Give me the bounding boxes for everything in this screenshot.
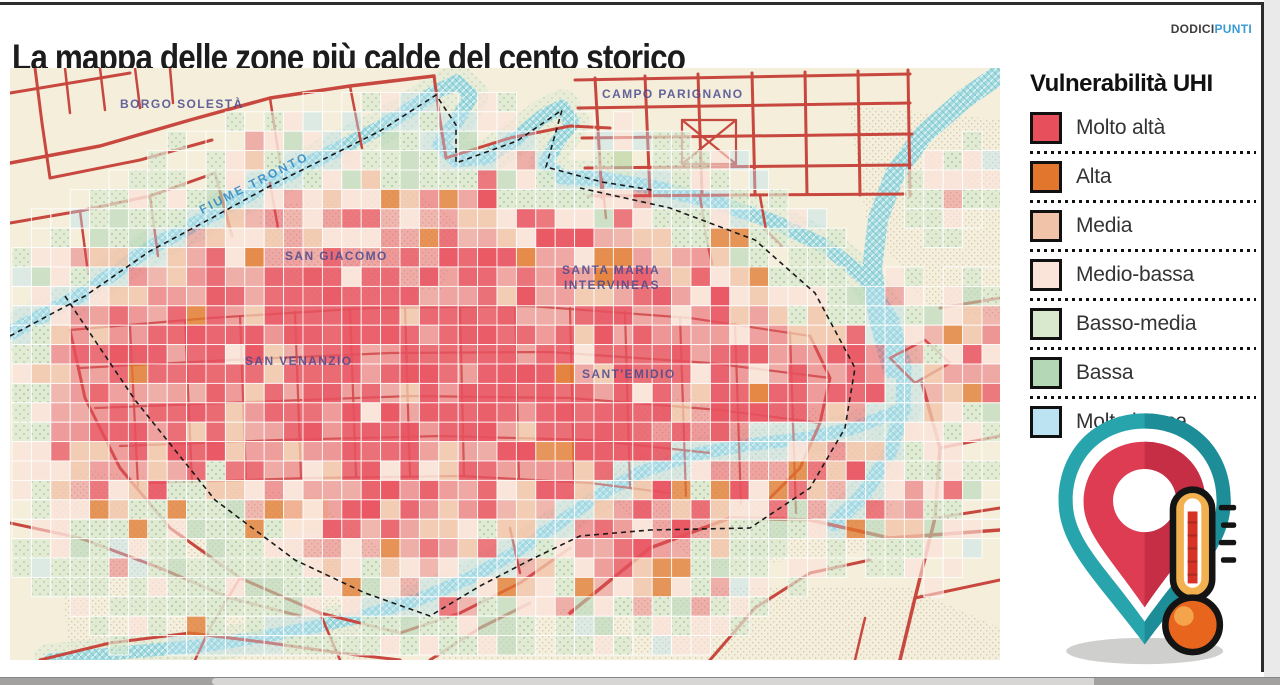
legend-label-1: Alta	[1076, 165, 1111, 189]
legend-title: Vulnerabilità UHI	[1030, 70, 1256, 98]
legend-swatch-4	[1030, 308, 1062, 340]
legend-separator	[1030, 151, 1256, 154]
legend-row-0: Molto altà	[1030, 106, 1256, 149]
page-right-gutter	[1264, 0, 1280, 685]
district-label: BORGO SOLESTÀ	[120, 96, 244, 111]
district-label: CAMPO PARIGNANO	[602, 87, 743, 101]
legend-label-3: Medio-bassa	[1076, 263, 1194, 287]
uhi-heat-map: BORGO SOLESTÀCAMPO PARIGNANOFIUME TRONTO…	[10, 68, 1000, 660]
district-label: SAN VENANZIO	[245, 354, 352, 368]
legend-separator	[1030, 249, 1256, 252]
brand-part1: DODICI	[1171, 22, 1215, 36]
legend-row-2: Media	[1030, 204, 1256, 247]
legend-swatch-1	[1030, 161, 1062, 193]
road	[858, 71, 860, 195]
legend-separator	[1030, 347, 1256, 350]
brand-logo: DODICIPUNTI	[1171, 22, 1252, 36]
frame-right-rule	[1261, 2, 1264, 672]
legend-label-5: Bassa	[1076, 361, 1133, 385]
legend-panel: Vulnerabilità UHI Molto altàAltaMediaMed…	[1030, 70, 1256, 443]
legend-row-1: Alta	[1030, 155, 1256, 198]
legend-label-0: Molto altà	[1076, 116, 1165, 140]
district-label: INTERVINEAS	[564, 278, 660, 292]
legend-swatch-5	[1030, 357, 1062, 389]
horizontal-scrollbar-track[interactable]	[0, 677, 1280, 685]
legend-row-3: Medio-bassa	[1030, 253, 1256, 296]
district-label: SANTA MARIA	[562, 263, 660, 277]
legend-label-2: Media	[1076, 214, 1132, 238]
legend-separator	[1030, 200, 1256, 203]
legend-row-4: Basso-media	[1030, 302, 1256, 345]
pin-thermometer-svg	[1040, 402, 1258, 670]
frame-top-rule	[0, 2, 1263, 5]
legend-label-4: Basso-media	[1076, 312, 1196, 336]
pin-hole	[1113, 469, 1176, 532]
legend-swatch-3	[1030, 259, 1062, 291]
district-label: SANT'EMIDIO	[582, 367, 676, 381]
legend-separator	[1030, 298, 1256, 301]
brand-part2: PUNTI	[1215, 22, 1253, 36]
legend-swatch-0	[1030, 112, 1062, 144]
district-label: SAN GIACOMO	[285, 249, 388, 263]
legend-row-5: Bassa	[1030, 351, 1256, 394]
legend-items: Molto altàAltaMediaMedio-bassaBasso-medi…	[1030, 106, 1256, 443]
map-pin-thermometer-icon	[1040, 402, 1258, 670]
legend-separator	[1030, 396, 1256, 399]
legend-swatch-2	[1030, 210, 1062, 242]
horizontal-scrollbar-thumb[interactable]	[212, 678, 1094, 685]
uhi-map-svg: BORGO SOLESTÀCAMPO PARIGNANOFIUME TRONTO…	[10, 68, 1000, 660]
road	[805, 72, 807, 194]
